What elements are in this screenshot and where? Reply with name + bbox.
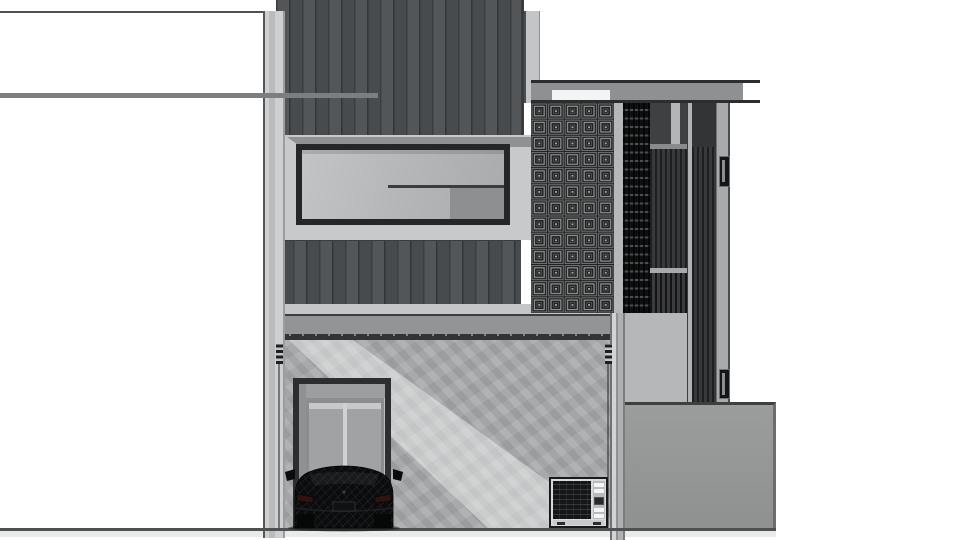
car-license-plate <box>333 502 355 511</box>
drain-rod-left <box>278 364 280 528</box>
slab-face <box>263 316 614 334</box>
car-mirror-right <box>393 469 403 481</box>
suv-car-drawing <box>283 450 405 532</box>
slat-right-header <box>692 103 716 147</box>
pillar-slot-upper <box>719 156 730 187</box>
ac-vent-slat <box>594 489 604 493</box>
window-band-wall <box>285 135 531 240</box>
header-light-bar <box>671 103 680 144</box>
ac-vent-slat <box>594 508 604 512</box>
slats-upper <box>650 149 687 268</box>
ribbon-window-glass <box>302 150 504 219</box>
roller-bracket-left <box>276 344 283 364</box>
ac-base-rail <box>553 520 604 525</box>
slat-screen-header <box>650 103 687 144</box>
roof-fascia <box>531 83 743 100</box>
slat-screen-right <box>692 103 716 403</box>
ac-coil-grille <box>553 481 591 519</box>
slats-lower <box>650 273 687 313</box>
breeze-block-screen <box>531 103 614 313</box>
site-line-mid <box>0 93 378 98</box>
concrete-pillar <box>716 103 730 403</box>
wall-return-strips <box>610 313 625 540</box>
breeze-block-pattern <box>531 103 614 313</box>
suv-car <box>283 450 405 532</box>
slat-right-slats <box>692 147 716 403</box>
slot-highlight <box>722 373 725 395</box>
ac-foot <box>593 522 601 525</box>
car-wheel-right <box>374 514 391 528</box>
floor-slab-band <box>263 314 614 340</box>
spandrel-siding-band <box>267 240 521 306</box>
ac-vent-slat <box>594 483 604 487</box>
roller-bracket-right <box>605 344 612 364</box>
side-wall-lower <box>625 313 687 403</box>
slot-highlight <box>722 160 725 182</box>
ac-foot <box>557 522 565 525</box>
ribbon-window-frame <box>296 144 510 225</box>
ac-outdoor-unit <box>549 477 608 528</box>
pillar-slot-lower <box>719 369 730 399</box>
site-line-top <box>0 11 268 13</box>
left-wall-edge-strip <box>263 11 285 538</box>
window-top-shadow <box>302 150 504 154</box>
slat-screen-middle <box>650 103 687 313</box>
roof-gutter-patch <box>552 90 610 100</box>
slab-drip-ticks <box>263 334 614 336</box>
car-wheel-left <box>297 514 314 528</box>
louver-screen <box>623 103 650 313</box>
car-emblem <box>342 490 345 493</box>
upper-siding-panel <box>276 0 524 140</box>
recess-lintel <box>306 384 385 398</box>
window-lower-pane <box>450 188 504 219</box>
car-mirror-left <box>285 469 295 481</box>
ac-control-box <box>594 497 604 505</box>
ac-vent-slat <box>594 514 604 518</box>
boundary-fence-wall <box>625 402 776 530</box>
elevation-render <box>0 0 960 540</box>
ac-side-panel <box>593 481 605 519</box>
